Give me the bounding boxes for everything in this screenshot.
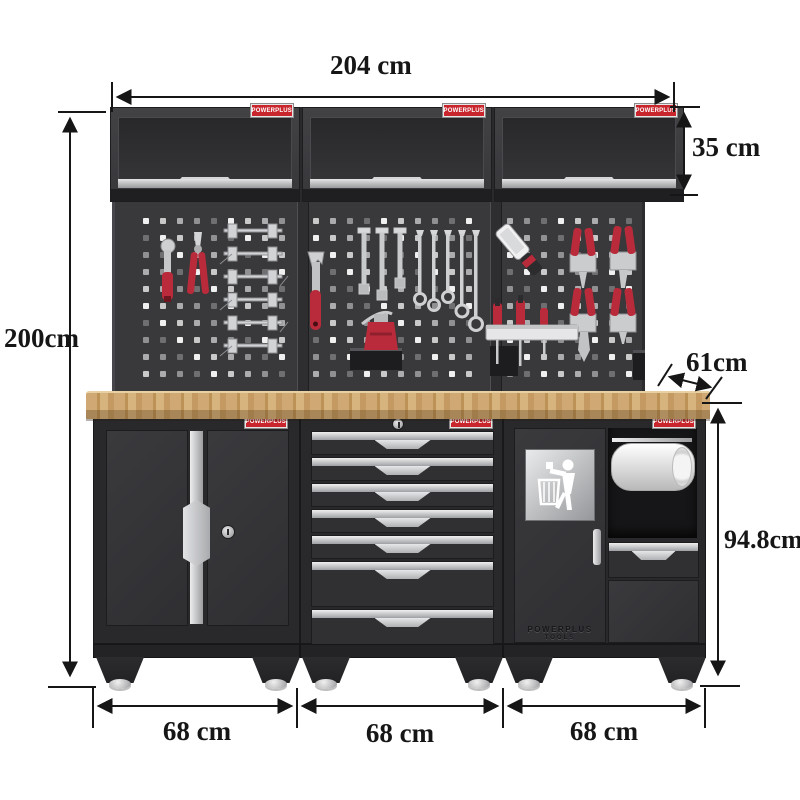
dimension-lines	[0, 0, 800, 800]
workbench-dimension-diagram: POWERPLUS POWERPLUS POWERPLUS	[0, 0, 800, 800]
